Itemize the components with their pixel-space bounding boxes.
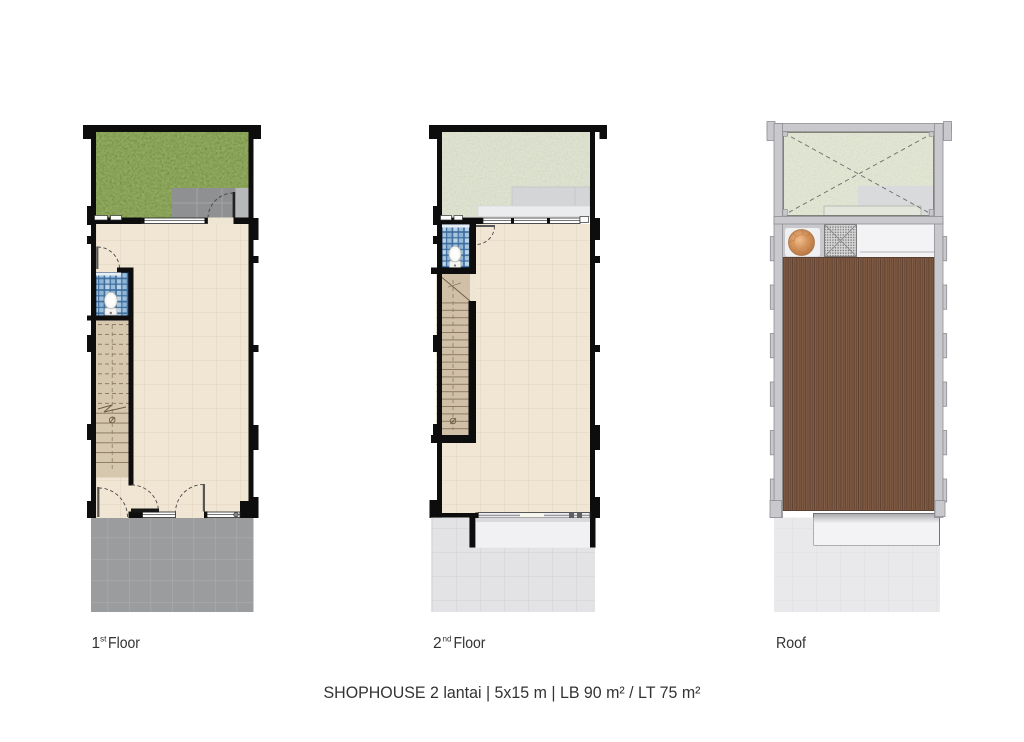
svg-text:2: 2 <box>433 635 442 652</box>
svg-text:Floor: Floor <box>108 635 140 652</box>
svg-text:Floor: Floor <box>454 635 486 652</box>
svg-text:st: st <box>100 634 107 644</box>
svg-text:Roof: Roof <box>776 635 807 652</box>
svg-text:SHOPHOUSE 2 lantai | 5x15 m |: SHOPHOUSE 2 lantai | 5x15 m | LB 90 m² /… <box>324 683 701 702</box>
svg-text:1: 1 <box>92 635 101 652</box>
svg-text:nd: nd <box>443 634 452 644</box>
